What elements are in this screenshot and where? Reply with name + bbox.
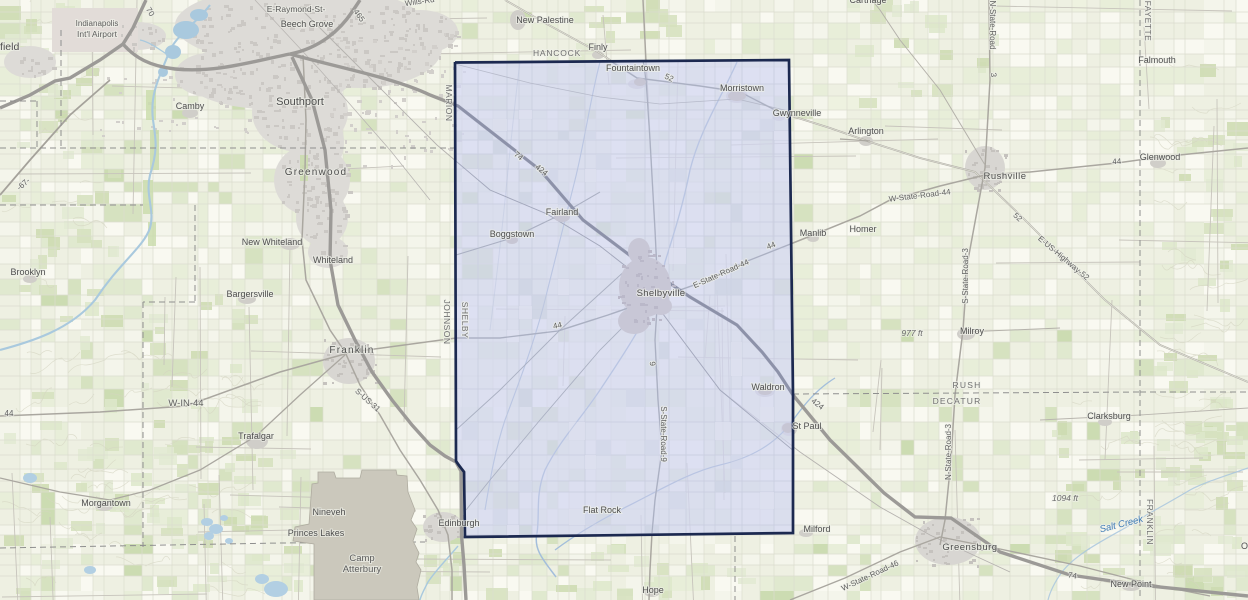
svg-text:JOHNSON: JOHNSON (442, 299, 452, 344)
svg-text:Arlington: Arlington (848, 126, 884, 136)
svg-text:Waldron: Waldron (751, 382, 784, 392)
svg-text:Glenwood: Glenwood (1140, 152, 1181, 162)
svg-text:Gwynneville: Gwynneville (773, 108, 822, 118)
svg-text:Edinburgh: Edinburgh (438, 518, 479, 528)
svg-text:FAYETTE: FAYETTE (1143, 1, 1153, 42)
svg-text:Clarksburg: Clarksburg (1087, 411, 1131, 421)
svg-text:SHELBY: SHELBY (460, 302, 470, 339)
svg-text:Milford: Milford (803, 524, 830, 534)
svg-text:New Whiteland: New Whiteland (242, 237, 303, 247)
svg-text:Oldenburg: Oldenburg (1241, 541, 1248, 551)
svg-text:Franklin: Franklin (329, 345, 374, 356)
svg-text:S-State-Road-9: S-State-Road-9 (659, 406, 668, 462)
svg-text:Greensburg: Greensburg (942, 542, 997, 553)
svg-text:DECATUR: DECATUR (933, 396, 982, 406)
svg-text:E-Raymond-St-: E-Raymond-St- (267, 4, 326, 14)
svg-text:Rushville: Rushville (983, 171, 1026, 182)
svg-text:FRANKLIN: FRANKLIN (1145, 499, 1155, 545)
svg-text:Int'l Airport: Int'l Airport (77, 29, 118, 39)
svg-text:MARION: MARION (444, 85, 454, 122)
svg-text:W-IN-44: W-IN-44 (168, 398, 203, 409)
svg-text:Fountaintown: Fountaintown (606, 63, 660, 73)
svg-text:Shelbyville: Shelbyville (637, 288, 686, 299)
svg-text:Finly: Finly (588, 42, 608, 52)
svg-text:Hope: Hope (642, 585, 664, 595)
svg-text:Trafalgar: Trafalgar (238, 431, 274, 441)
svg-text:N-State-Road-3: N-State-Road-3 (944, 423, 953, 480)
svg-text:Plainfield: Plainfield (0, 41, 19, 53)
svg-text:Atterbury: Atterbury (343, 564, 382, 575)
svg-text:RUSH: RUSH (953, 380, 982, 390)
svg-text:44: 44 (1112, 157, 1122, 167)
svg-text:Princes Lakes: Princes Lakes (288, 528, 345, 538)
svg-text:977 ft: 977 ft (901, 328, 923, 338)
svg-text:Nineveh: Nineveh (312, 507, 345, 517)
svg-text:Greenwood: Greenwood (285, 167, 348, 178)
svg-text:Carthage: Carthage (849, 0, 886, 5)
svg-text:Milroy: Milroy (960, 326, 984, 336)
svg-text:Beech Grove: Beech Grove (281, 19, 334, 29)
svg-text:Homer: Homer (849, 224, 876, 234)
svg-text:Morgantown: Morgantown (81, 498, 131, 508)
svg-text:Brooklyn: Brooklyn (10, 267, 45, 277)
svg-text:Morristown: Morristown (720, 83, 764, 93)
svg-text:1094 ft: 1094 ft (1052, 493, 1079, 503)
svg-text:Falmouth: Falmouth (1138, 55, 1176, 65)
svg-text:N-State-Road: N-State-Road (988, 1, 997, 50)
svg-text:44: 44 (5, 409, 14, 418)
svg-text:St Paul: St Paul (792, 421, 821, 431)
svg-text:Camby: Camby (176, 101, 205, 111)
svg-text:Fairland: Fairland (546, 207, 579, 217)
svg-text:Camp: Camp (349, 553, 374, 564)
svg-text:S-State-Road-3: S-State-Road-3 (961, 248, 970, 304)
svg-text:New Point: New Point (1110, 579, 1152, 589)
svg-text:Indianapolis: Indianapolis (76, 19, 119, 28)
svg-text:HANCOCK: HANCOCK (533, 48, 581, 58)
svg-text:Bargersville: Bargersville (226, 289, 273, 299)
svg-text:Whiteland: Whiteland (313, 255, 353, 265)
svg-text:Flat Rock: Flat Rock (583, 505, 622, 515)
svg-text:Southport: Southport (276, 96, 324, 108)
svg-text:Boggstown: Boggstown (490, 229, 535, 239)
svg-text:Manlib: Manlib (800, 228, 827, 238)
svg-text:New Palestine: New Palestine (516, 15, 574, 25)
